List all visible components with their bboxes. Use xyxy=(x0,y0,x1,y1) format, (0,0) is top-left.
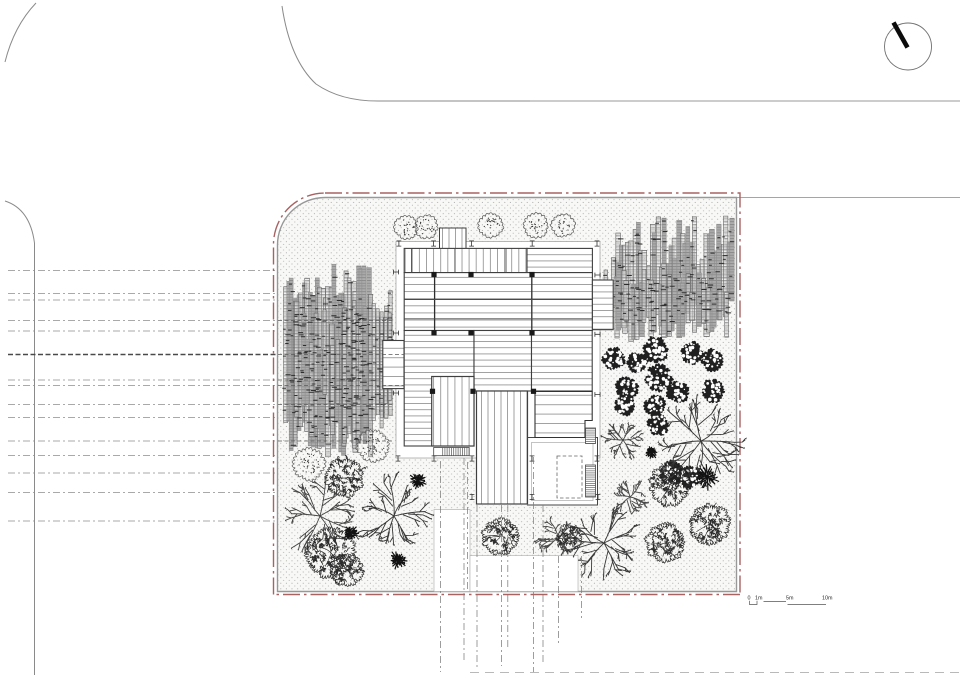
svg-text:0: 0 xyxy=(748,596,751,602)
svg-text:5m: 5m xyxy=(786,596,794,602)
svg-text:10m: 10m xyxy=(822,596,833,602)
svg-text:1m: 1m xyxy=(755,596,763,602)
